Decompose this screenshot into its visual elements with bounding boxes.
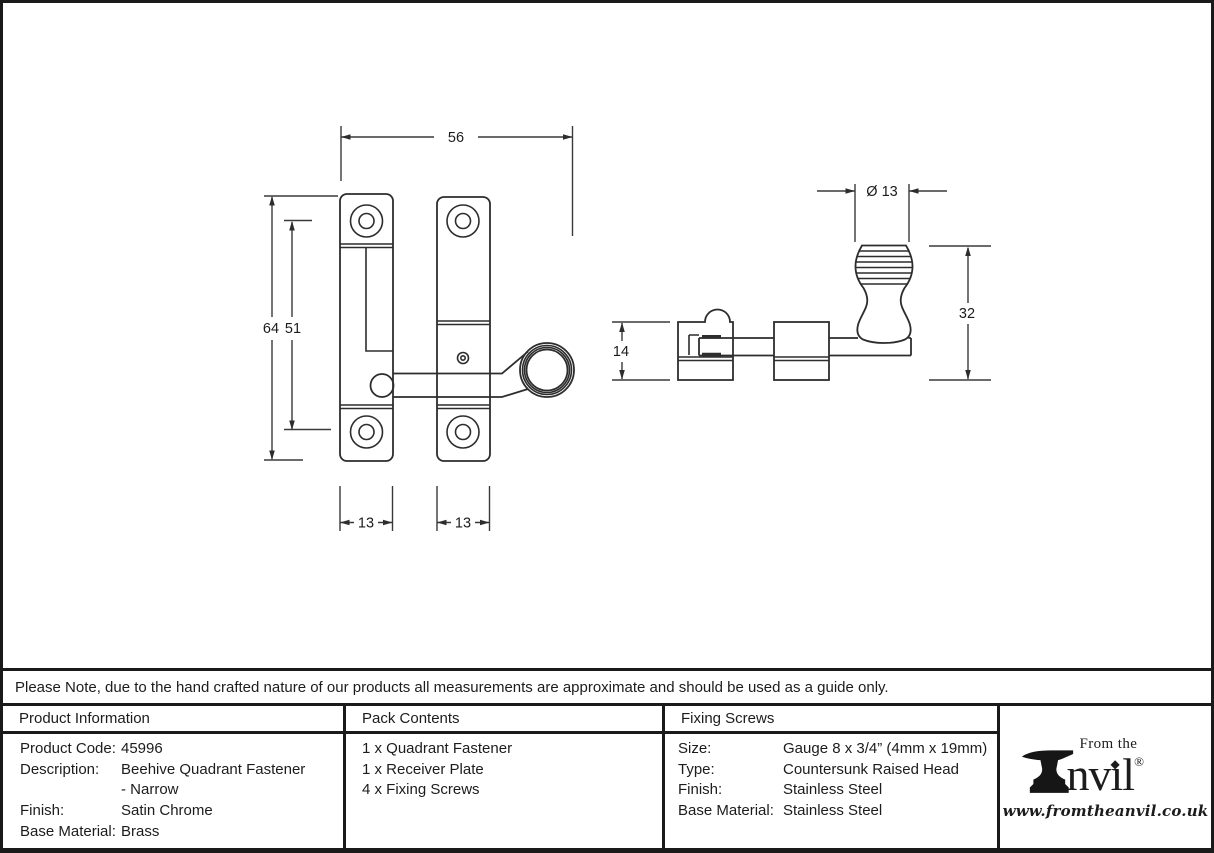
logo-letter-l: l: [1122, 749, 1134, 800]
fastener-block-split: [774, 357, 829, 361]
logo-letters-nv: nv: [1067, 749, 1111, 800]
brand-url: www.fromtheanvil.co.uk: [1003, 802, 1209, 820]
dim-overall-width-label: 56: [448, 130, 464, 146]
row-value: Gauge 8 x 3/4” (4mm x 19mm): [783, 739, 997, 760]
arm-slot: [366, 248, 393, 352]
dim-left-plate-width: 13: [340, 486, 393, 532]
row-label: Product Code:: [3, 739, 121, 760]
brand-column: From the nv◆ıl® www.fromtheanvil.co.uk: [1000, 706, 1211, 848]
side-view: Ø 13 14 32: [612, 184, 991, 380]
fixing-screws-column: Fixing Screws Size: Gauge 8 x 3/4” (4mm …: [665, 706, 1000, 848]
receiver-block: [678, 310, 733, 381]
list-item: 1 x Quadrant Fastener: [346, 739, 662, 760]
brand-logo: From the nv◆ıl® www.fromtheanvil.co.uk: [1000, 706, 1211, 848]
row-value: Beehive Quadrant Fastener: [121, 760, 343, 781]
row-value: Stainless Steel: [783, 780, 997, 801]
fastener-block: [774, 322, 829, 380]
receiver-block-split: [678, 357, 733, 361]
row-value: Brass: [121, 822, 343, 843]
side-arm-bar: [699, 338, 911, 356]
diamond-tittle-icon: ◆: [1111, 758, 1120, 770]
table-row: Base Material: Stainless Steel: [665, 801, 997, 822]
registered-mark: ®: [1134, 755, 1144, 768]
row-value: Countersunk Raised Head: [783, 760, 997, 781]
table-row: Product Code: 45996: [3, 739, 343, 760]
pack-contents-column: Pack Contents 1 x Quadrant Fastener 1 x …: [346, 706, 665, 848]
arm-screw-hole: [458, 353, 469, 364]
spec-sheet-page: 56 64 51: [0, 0, 1214, 853]
table-row: Base Material: Brass: [3, 822, 343, 843]
row-label: Finish:: [665, 780, 783, 801]
row-label: Type:: [665, 760, 783, 781]
knob-ridges: [850, 251, 918, 284]
fixing-screws-header: Fixing Screws: [665, 706, 997, 734]
list-item: 1 x Receiver Plate: [346, 760, 662, 781]
dim-plate-height: 14: [612, 322, 670, 380]
dim-overall-projection: 32: [929, 246, 991, 380]
screw-holes: [351, 205, 480, 448]
table-row: Type: Countersunk Raised Head: [665, 760, 997, 781]
row-value: Stainless Steel: [783, 801, 997, 822]
dim-overall-width: 56: [341, 126, 573, 236]
spec-table: Product Information Product Code: 45996 …: [3, 706, 1211, 848]
table-row: Finish: Satin Chrome: [3, 801, 343, 822]
table-row: Finish: Stainless Steel: [665, 780, 997, 801]
pack-contents-body: 1 x Quadrant Fastener 1 x Receiver Plate…: [346, 734, 662, 801]
row-value: - Narrow: [121, 780, 343, 801]
logo-letter-i: ◆ı: [1111, 752, 1123, 798]
dim-right-plate-width-label: 13: [455, 516, 471, 532]
product-information-column: Product Information Product Code: 45996 …: [3, 706, 346, 848]
logo-wordmark: nv◆ıl®: [1067, 752, 1144, 798]
beehive-knob: [856, 246, 913, 344]
row-label: Size:: [665, 739, 783, 760]
note-text: Please Note, due to the hand crafted nat…: [15, 679, 889, 696]
product-information-body: Product Code: 45996 Description: Beehive…: [3, 734, 343, 843]
front-view: 56 64 51: [263, 126, 574, 532]
row-label: Base Material:: [665, 801, 783, 822]
dim-overall-height-label: 64: [263, 321, 279, 337]
anvil-logo-mark: From the nv◆ıl®: [1021, 735, 1191, 801]
row-value: Satin Chrome: [121, 801, 343, 822]
pack-contents-header: Pack Contents: [346, 706, 662, 734]
dim-left-plate-width-label: 13: [358, 516, 374, 532]
pivot-pin: [689, 335, 721, 355]
pivot-circle: [371, 374, 394, 397]
fixing-screws-body: Size: Gauge 8 x 3/4” (4mm x 19mm) Type: …: [665, 734, 997, 822]
dim-knob-diameter: Ø 13: [817, 184, 947, 242]
table-row: Description: Beehive Quadrant Fastener: [3, 760, 343, 781]
dim-knob-diameter-label: Ø 13: [866, 184, 897, 200]
list-item: 4 x Fixing Screws: [346, 780, 662, 801]
dim-screw-spacing-label: 51: [285, 321, 301, 337]
product-information-header: Product Information: [3, 706, 343, 734]
note-bar: Please Note, due to the hand crafted nat…: [3, 668, 1211, 706]
row-value: 45996: [121, 739, 343, 760]
row-label: Finish:: [3, 801, 121, 822]
table-row: - Narrow: [3, 780, 343, 801]
dim-right-plate-width: 13: [437, 486, 490, 532]
row-label: Description:: [3, 760, 121, 781]
plate-bands: [340, 244, 490, 409]
technical-drawing: 56 64 51: [3, 3, 1211, 665]
table-row: Size: Gauge 8 x 3/4” (4mm x 19mm): [665, 739, 997, 760]
dim-plate-height-label: 14: [613, 344, 629, 360]
row-label: [3, 780, 121, 801]
dim-screw-spacing: 51: [284, 221, 331, 431]
ring-handle: [520, 343, 574, 397]
row-label: Base Material:: [3, 822, 121, 843]
dim-overall-projection-label: 32: [959, 306, 975, 322]
